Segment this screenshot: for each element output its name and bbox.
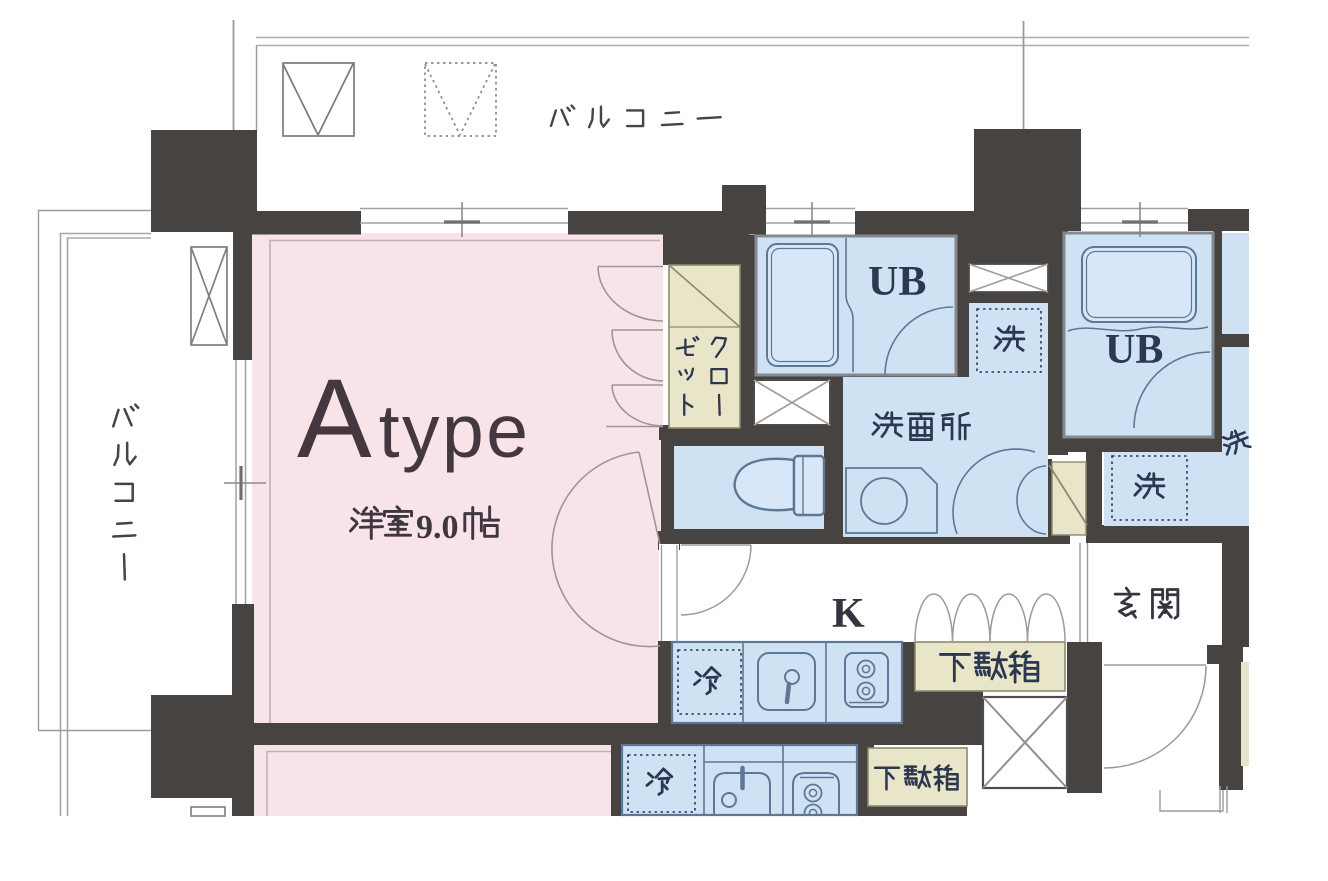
- svg-text:9.0: 9.0: [416, 509, 459, 546]
- svg-text:K: K: [832, 591, 865, 637]
- svg-text:UB: UB: [1105, 327, 1163, 373]
- svg-text:UB: UB: [868, 259, 926, 305]
